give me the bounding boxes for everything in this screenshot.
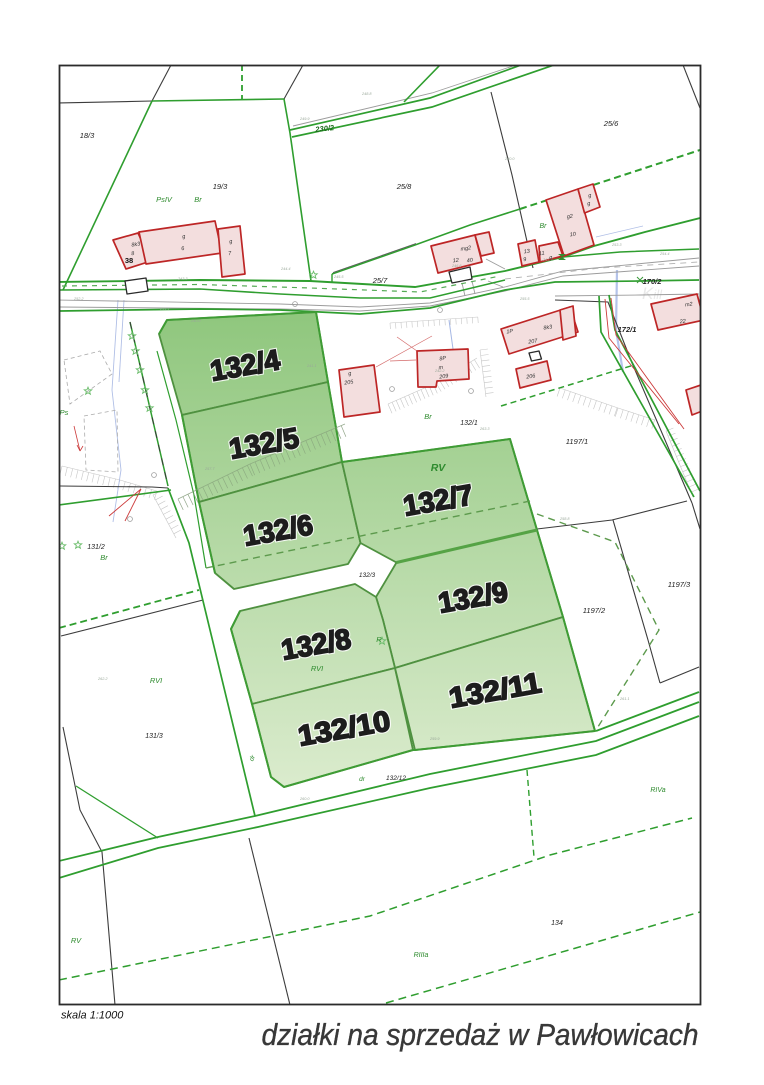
svg-text:RVI: RVI xyxy=(150,676,162,685)
svg-text:244.4: 244.4 xyxy=(280,267,291,271)
svg-text:25/8: 25/8 xyxy=(396,182,412,191)
svg-text:249.9: 249.9 xyxy=(299,117,310,121)
svg-text:172/1: 172/1 xyxy=(618,325,637,334)
svg-text:134: 134 xyxy=(551,920,563,927)
svg-text:Kill: Kill xyxy=(642,284,663,303)
svg-text:245.5: 245.5 xyxy=(333,275,344,279)
svg-text:1197/2: 1197/2 xyxy=(583,606,606,615)
svg-text:262.2: 262.2 xyxy=(97,677,108,681)
svg-text:Ps: Ps xyxy=(60,408,69,417)
svg-text:Br: Br xyxy=(194,195,202,204)
svg-text:Br: Br xyxy=(540,223,548,230)
svg-text:19/3: 19/3 xyxy=(213,182,228,191)
svg-text:RV: RV xyxy=(431,462,447,474)
svg-text:25/7: 25/7 xyxy=(372,276,388,285)
svg-text:132/1: 132/1 xyxy=(460,420,478,427)
svg-text:132/3: 132/3 xyxy=(359,572,376,579)
svg-text:250.0: 250.0 xyxy=(504,157,515,161)
svg-text:260.0: 260.0 xyxy=(299,797,310,801)
svg-text:243.3: 243.3 xyxy=(177,277,188,281)
svg-text:254.4: 254.4 xyxy=(659,252,670,256)
svg-text:240.0: 240.0 xyxy=(190,319,201,323)
svg-text:251.1: 251.1 xyxy=(159,307,170,311)
svg-text:1P: 1P xyxy=(506,329,514,336)
svg-text:Br: Br xyxy=(100,553,108,562)
svg-text:m2: m2 xyxy=(685,302,693,309)
svg-text:1197/3: 1197/3 xyxy=(668,580,691,589)
svg-text:RIVa: RIVa xyxy=(650,787,665,794)
svg-text:261.1: 261.1 xyxy=(619,697,630,701)
svg-text:1197/1: 1197/1 xyxy=(566,437,588,446)
svg-text:131/2: 131/2 xyxy=(87,544,105,551)
svg-text:Br: Br xyxy=(424,412,432,421)
svg-text:skala 1:1000: skala 1:1000 xyxy=(61,1010,124,1022)
svg-text:11: 11 xyxy=(539,251,545,258)
svg-text:131/3: 131/3 xyxy=(145,733,163,740)
svg-text:247.7: 247.7 xyxy=(542,258,553,262)
svg-text:257.7: 257.7 xyxy=(204,467,215,471)
svg-text:R: R xyxy=(376,635,382,644)
svg-text:g2: g2 xyxy=(566,214,573,221)
svg-text:132/12: 132/12 xyxy=(386,775,406,782)
svg-text:263.3: 263.3 xyxy=(479,427,490,431)
svg-text:RV: RV xyxy=(71,936,82,945)
svg-text:działki na sprzedaż w Pawłowic: działki na sprzedaż w Pawłowicach xyxy=(262,1017,699,1052)
svg-text:18/3: 18/3 xyxy=(80,131,95,140)
svg-text:RIIIa: RIIIa xyxy=(414,952,429,959)
svg-text:RVI: RVI xyxy=(311,664,323,673)
svg-text:242.2: 242.2 xyxy=(434,369,445,373)
svg-text:170/2: 170/2 xyxy=(643,277,663,286)
svg-text:8P: 8P xyxy=(439,356,447,363)
svg-text:22: 22 xyxy=(678,319,686,326)
svg-text:259.9: 259.9 xyxy=(429,737,440,741)
svg-text:25/6: 25/6 xyxy=(603,119,619,128)
svg-text:246.6: 246.6 xyxy=(451,264,462,268)
svg-text:253.3: 253.3 xyxy=(611,243,622,247)
svg-text:248.8: 248.8 xyxy=(361,92,372,96)
svg-text:252.2: 252.2 xyxy=(73,297,84,301)
svg-text:PsIV: PsIV xyxy=(156,195,173,204)
svg-text:241.1: 241.1 xyxy=(306,364,317,368)
svg-text:255.5: 255.5 xyxy=(519,297,530,301)
svg-text:258.8: 258.8 xyxy=(559,517,570,521)
svg-text:38: 38 xyxy=(125,256,133,265)
svg-text:dr: dr xyxy=(359,776,366,783)
